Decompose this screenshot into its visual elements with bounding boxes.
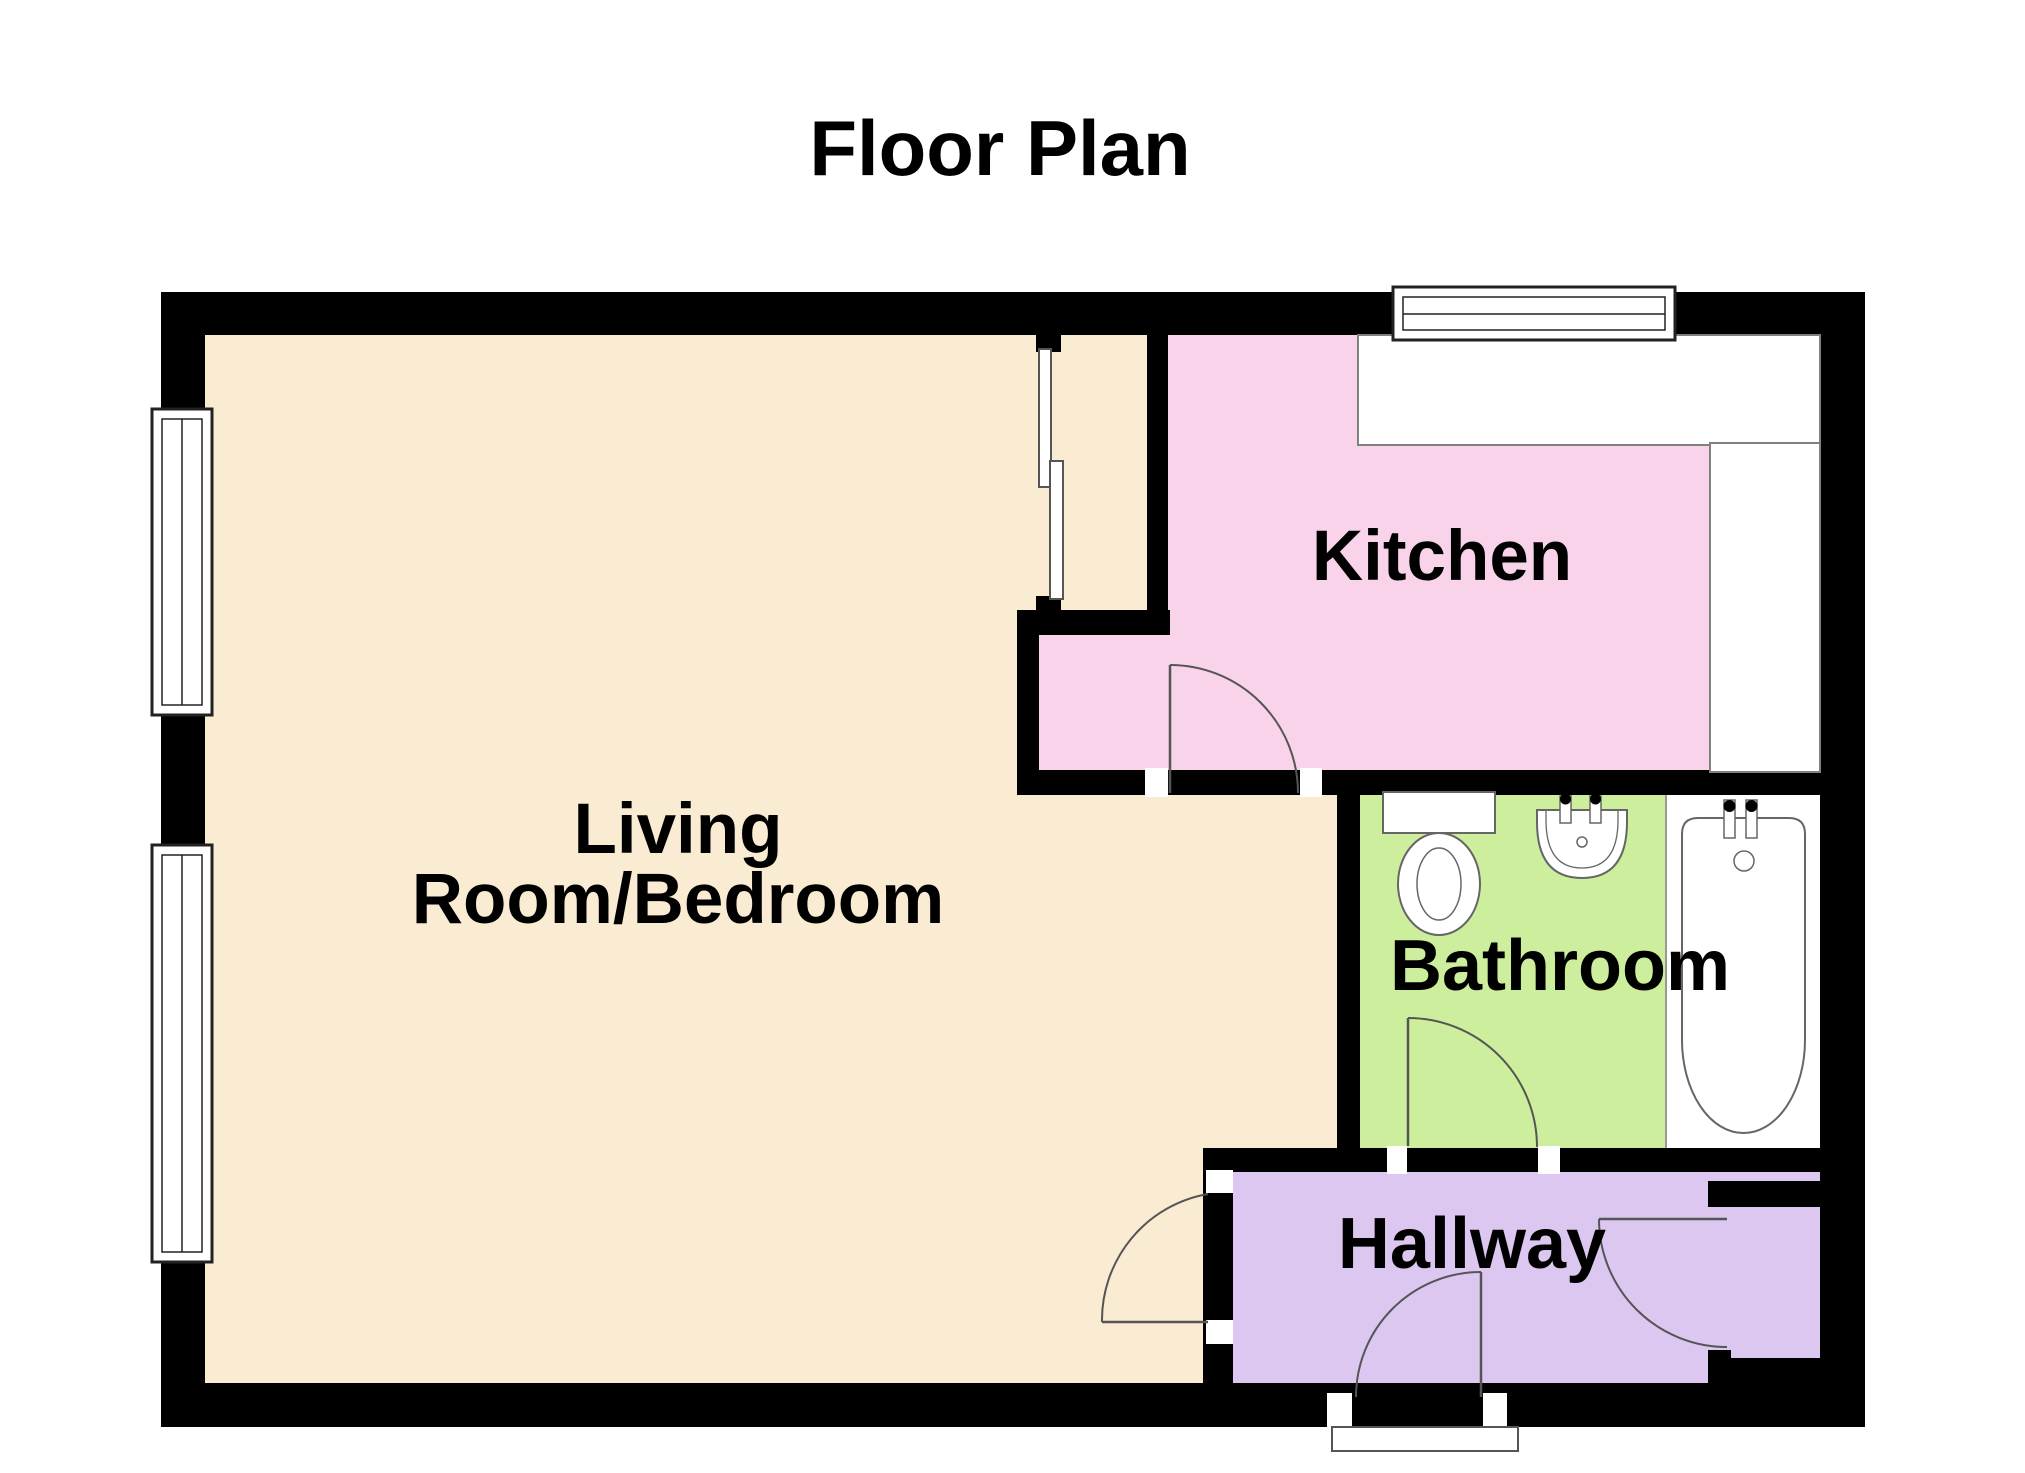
kitchen-label: Kitchen xyxy=(1312,517,1572,596)
kitchen-counter-right xyxy=(1710,443,1820,772)
jamb-bathroom-door-right xyxy=(1538,1146,1560,1174)
jamb-front-door-left xyxy=(1327,1393,1352,1427)
jamb-hallway-door-bottom xyxy=(1206,1320,1233,1344)
kitchen-counter-top xyxy=(1358,335,1820,445)
toilet-cistern xyxy=(1383,792,1495,833)
jamb-hallway-door-top xyxy=(1206,1170,1233,1193)
living-room-lower-floor-2 xyxy=(1030,1140,1215,1390)
bathroom-label: Bathroom xyxy=(1390,926,1730,1006)
wall-nook-nib xyxy=(1708,1181,1820,1207)
living-room-label-line2: Room/Bedroom xyxy=(412,860,945,939)
jamb-bathroom-door-left xyxy=(1387,1146,1407,1174)
jamb-kitchen-door-left xyxy=(1145,768,1168,797)
jamb-front-door-right xyxy=(1483,1393,1507,1427)
wall-hallway-north xyxy=(1203,1148,1820,1172)
jamb-kitchen-door-right xyxy=(1300,768,1322,797)
floor-plan-svg: Floor PlanLivingRoom/BedroomKitchenBathr… xyxy=(0,0,2025,1473)
wall-bathroom-west xyxy=(1337,795,1360,1170)
sliding-door-panel-b xyxy=(1050,461,1063,599)
wall-hallway-west xyxy=(1203,1172,1233,1383)
kitchen-floor-top xyxy=(1160,320,1366,452)
wall-nook-south xyxy=(1731,1358,1820,1383)
hallway-label: Hallway xyxy=(1338,1204,1606,1284)
bathtub-tap-right-knob xyxy=(1746,800,1758,812)
wall-bottom xyxy=(161,1383,1865,1427)
wall-alcove-south xyxy=(1017,610,1170,635)
sink-tap-left-knob xyxy=(1560,794,1571,805)
floor-plan-page: Floor PlanLivingRoom/BedroomKitchenBathr… xyxy=(0,0,2025,1473)
wall-living-kitchen xyxy=(1147,334,1168,635)
bathtub-tap-left-knob xyxy=(1724,800,1736,812)
plan-title: Floor Plan xyxy=(809,104,1190,192)
sink-tap-right-knob xyxy=(1590,794,1601,805)
living-room-lower-floor xyxy=(1030,780,1350,1160)
hallway-nook-floor xyxy=(1708,1198,1822,1366)
wall-right xyxy=(1820,292,1865,1427)
living-room-label-line1: Living xyxy=(573,790,782,869)
front-door-step xyxy=(1332,1427,1518,1451)
wall-nook-stub xyxy=(1708,1350,1731,1383)
kitchen-floor-low xyxy=(1028,628,1716,788)
